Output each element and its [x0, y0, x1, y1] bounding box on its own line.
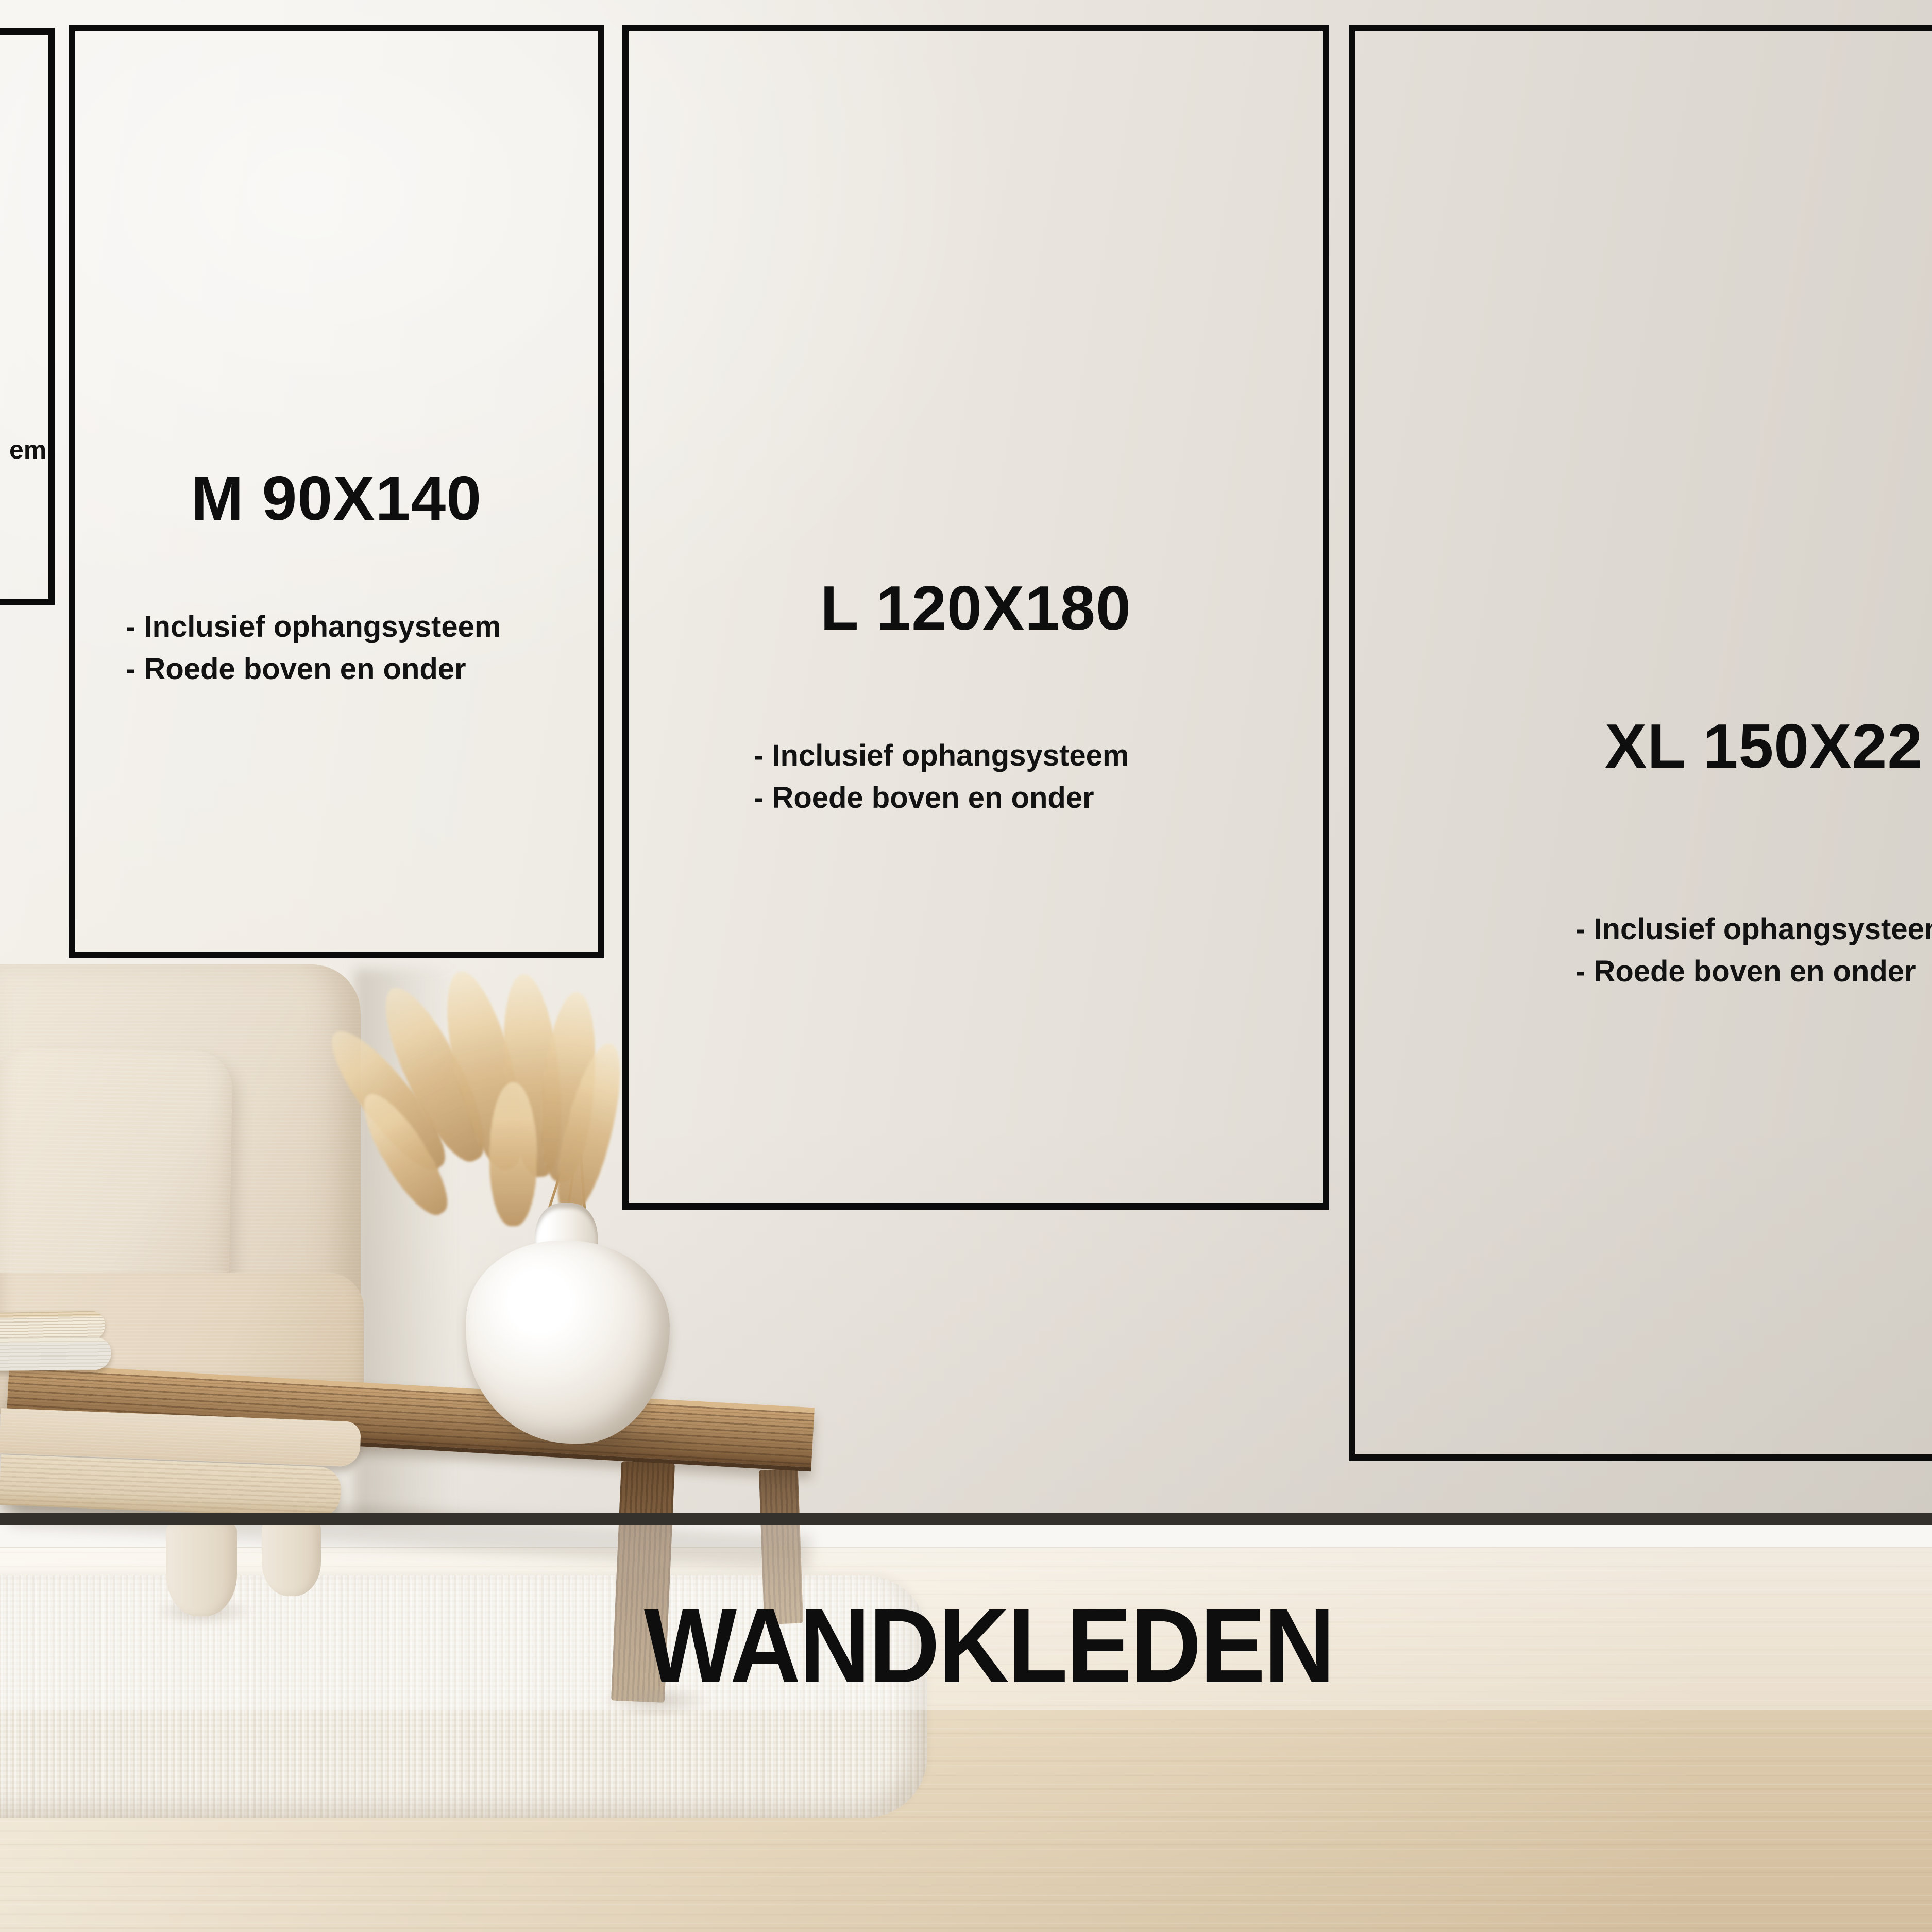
poster-title: WANDKLEDEN	[644, 1593, 1363, 1699]
bullet-line: - Roede boven en onder	[126, 648, 501, 690]
bullet-line: - Inclusief ophangsysteem	[754, 735, 1129, 777]
bullet-line: - Inclusief ophangsysteem	[1575, 908, 1932, 951]
size-card-l: L 120X180 - Inclusief ophangsysteem - Ro…	[622, 25, 1329, 1210]
size-card-xl-title: XL 150X22	[1605, 715, 1923, 777]
bullet-line: - Inclusief ophangsysteem	[126, 606, 501, 648]
pampas-plume	[489, 1082, 537, 1226]
size-card-xl-bullets: - Inclusief ophangsysteem - Roede boven …	[1575, 908, 1932, 993]
size-card-s-bullet-fragment: em	[9, 437, 46, 463]
size-card-m: M 90X140 - Inclusief ophangsysteem - Roe…	[69, 25, 604, 958]
book	[0, 1337, 111, 1371]
bullet-line: - Roede boven en onder	[754, 777, 1129, 819]
size-card-m-bullets: - Inclusief ophangsysteem - Roede boven …	[126, 606, 501, 690]
size-card-m-title: M 90X140	[75, 467, 598, 530]
bullet-line: - Roede boven en onder	[1575, 951, 1932, 993]
wall-floor-line	[0, 1513, 1932, 1525]
pampas-grass	[335, 953, 696, 1273]
size-card-l-title: L 120X180	[629, 577, 1323, 639]
poster-canvas: em M 90X140 - Inclusief ophangsysteem - …	[0, 0, 1932, 1932]
size-card-s: em	[0, 28, 55, 605]
size-card-l-bullets: - Inclusief ophangsysteem - Roede boven …	[754, 735, 1129, 819]
size-card-xl: XL 150X22 - Inclusief ophangsysteem - Ro…	[1349, 25, 1932, 1461]
